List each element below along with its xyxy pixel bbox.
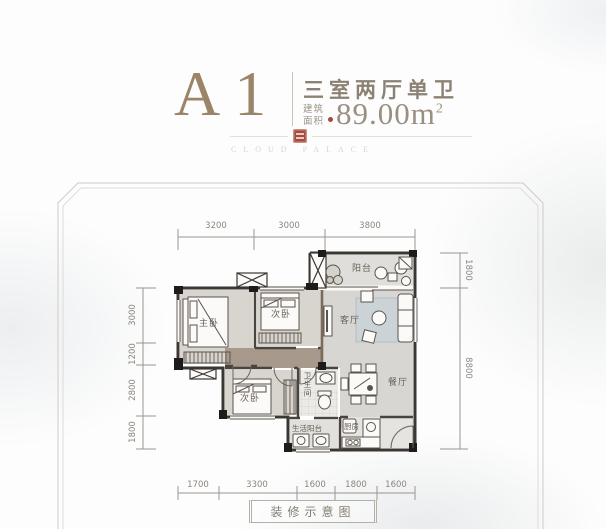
dim-bottom-1: 1700 bbox=[187, 480, 209, 490]
dim-right-1: 1800 bbox=[463, 259, 473, 281]
dim-bottom-2: 3300 bbox=[246, 480, 268, 490]
dim-bottom-5: 1600 bbox=[385, 480, 407, 490]
footer-plaque: 装修示意图 bbox=[249, 500, 377, 523]
room-label-bedroom3: 次卧 bbox=[240, 391, 260, 404]
room-label-balcony: 阳台 bbox=[352, 261, 372, 274]
bedroom2-wardrobe bbox=[259, 333, 301, 343]
dim-left-3: 2800 bbox=[128, 379, 138, 401]
corridor-floor bbox=[225, 348, 322, 368]
room-label-dining: 餐厅 bbox=[388, 375, 408, 388]
room-label-kitchen: 厨房 bbox=[344, 421, 359, 432]
dim-left-4: 1800 bbox=[128, 421, 138, 443]
room-label-bathroom: 卫生间 bbox=[302, 372, 313, 398]
dim-top-3: 3800 bbox=[359, 221, 381, 231]
flue-top bbox=[237, 273, 267, 287]
footer-label: 装修示意图 bbox=[270, 503, 355, 520]
room-label-utility: 生活阳台 bbox=[292, 423, 322, 434]
dim-top-2: 3000 bbox=[278, 221, 300, 231]
dim-top-1: 3200 bbox=[205, 221, 227, 231]
dim-left-1: 3000 bbox=[128, 304, 138, 326]
ledge-left bbox=[190, 369, 216, 379]
room-label-living: 客厅 bbox=[340, 313, 360, 326]
dim-bottom-4: 1800 bbox=[345, 480, 367, 490]
dim-left-2: 1200 bbox=[128, 343, 138, 365]
dim-bottom-3: 1600 bbox=[304, 480, 326, 490]
tv-cabinet bbox=[324, 306, 332, 336]
room-label-master: 主卧 bbox=[199, 316, 219, 329]
flue-balcony bbox=[310, 253, 326, 288]
dim-right-2: 8800 bbox=[463, 357, 473, 379]
floorplan-svg bbox=[0, 0, 606, 529]
floorplan-card: A1 三室两厅单卫 建筑面积 89.00m2 CLOUD PALACE bbox=[0, 0, 606, 529]
room-label-bedroom2: 次卧 bbox=[271, 307, 291, 320]
master-wardrobe bbox=[184, 352, 230, 363]
